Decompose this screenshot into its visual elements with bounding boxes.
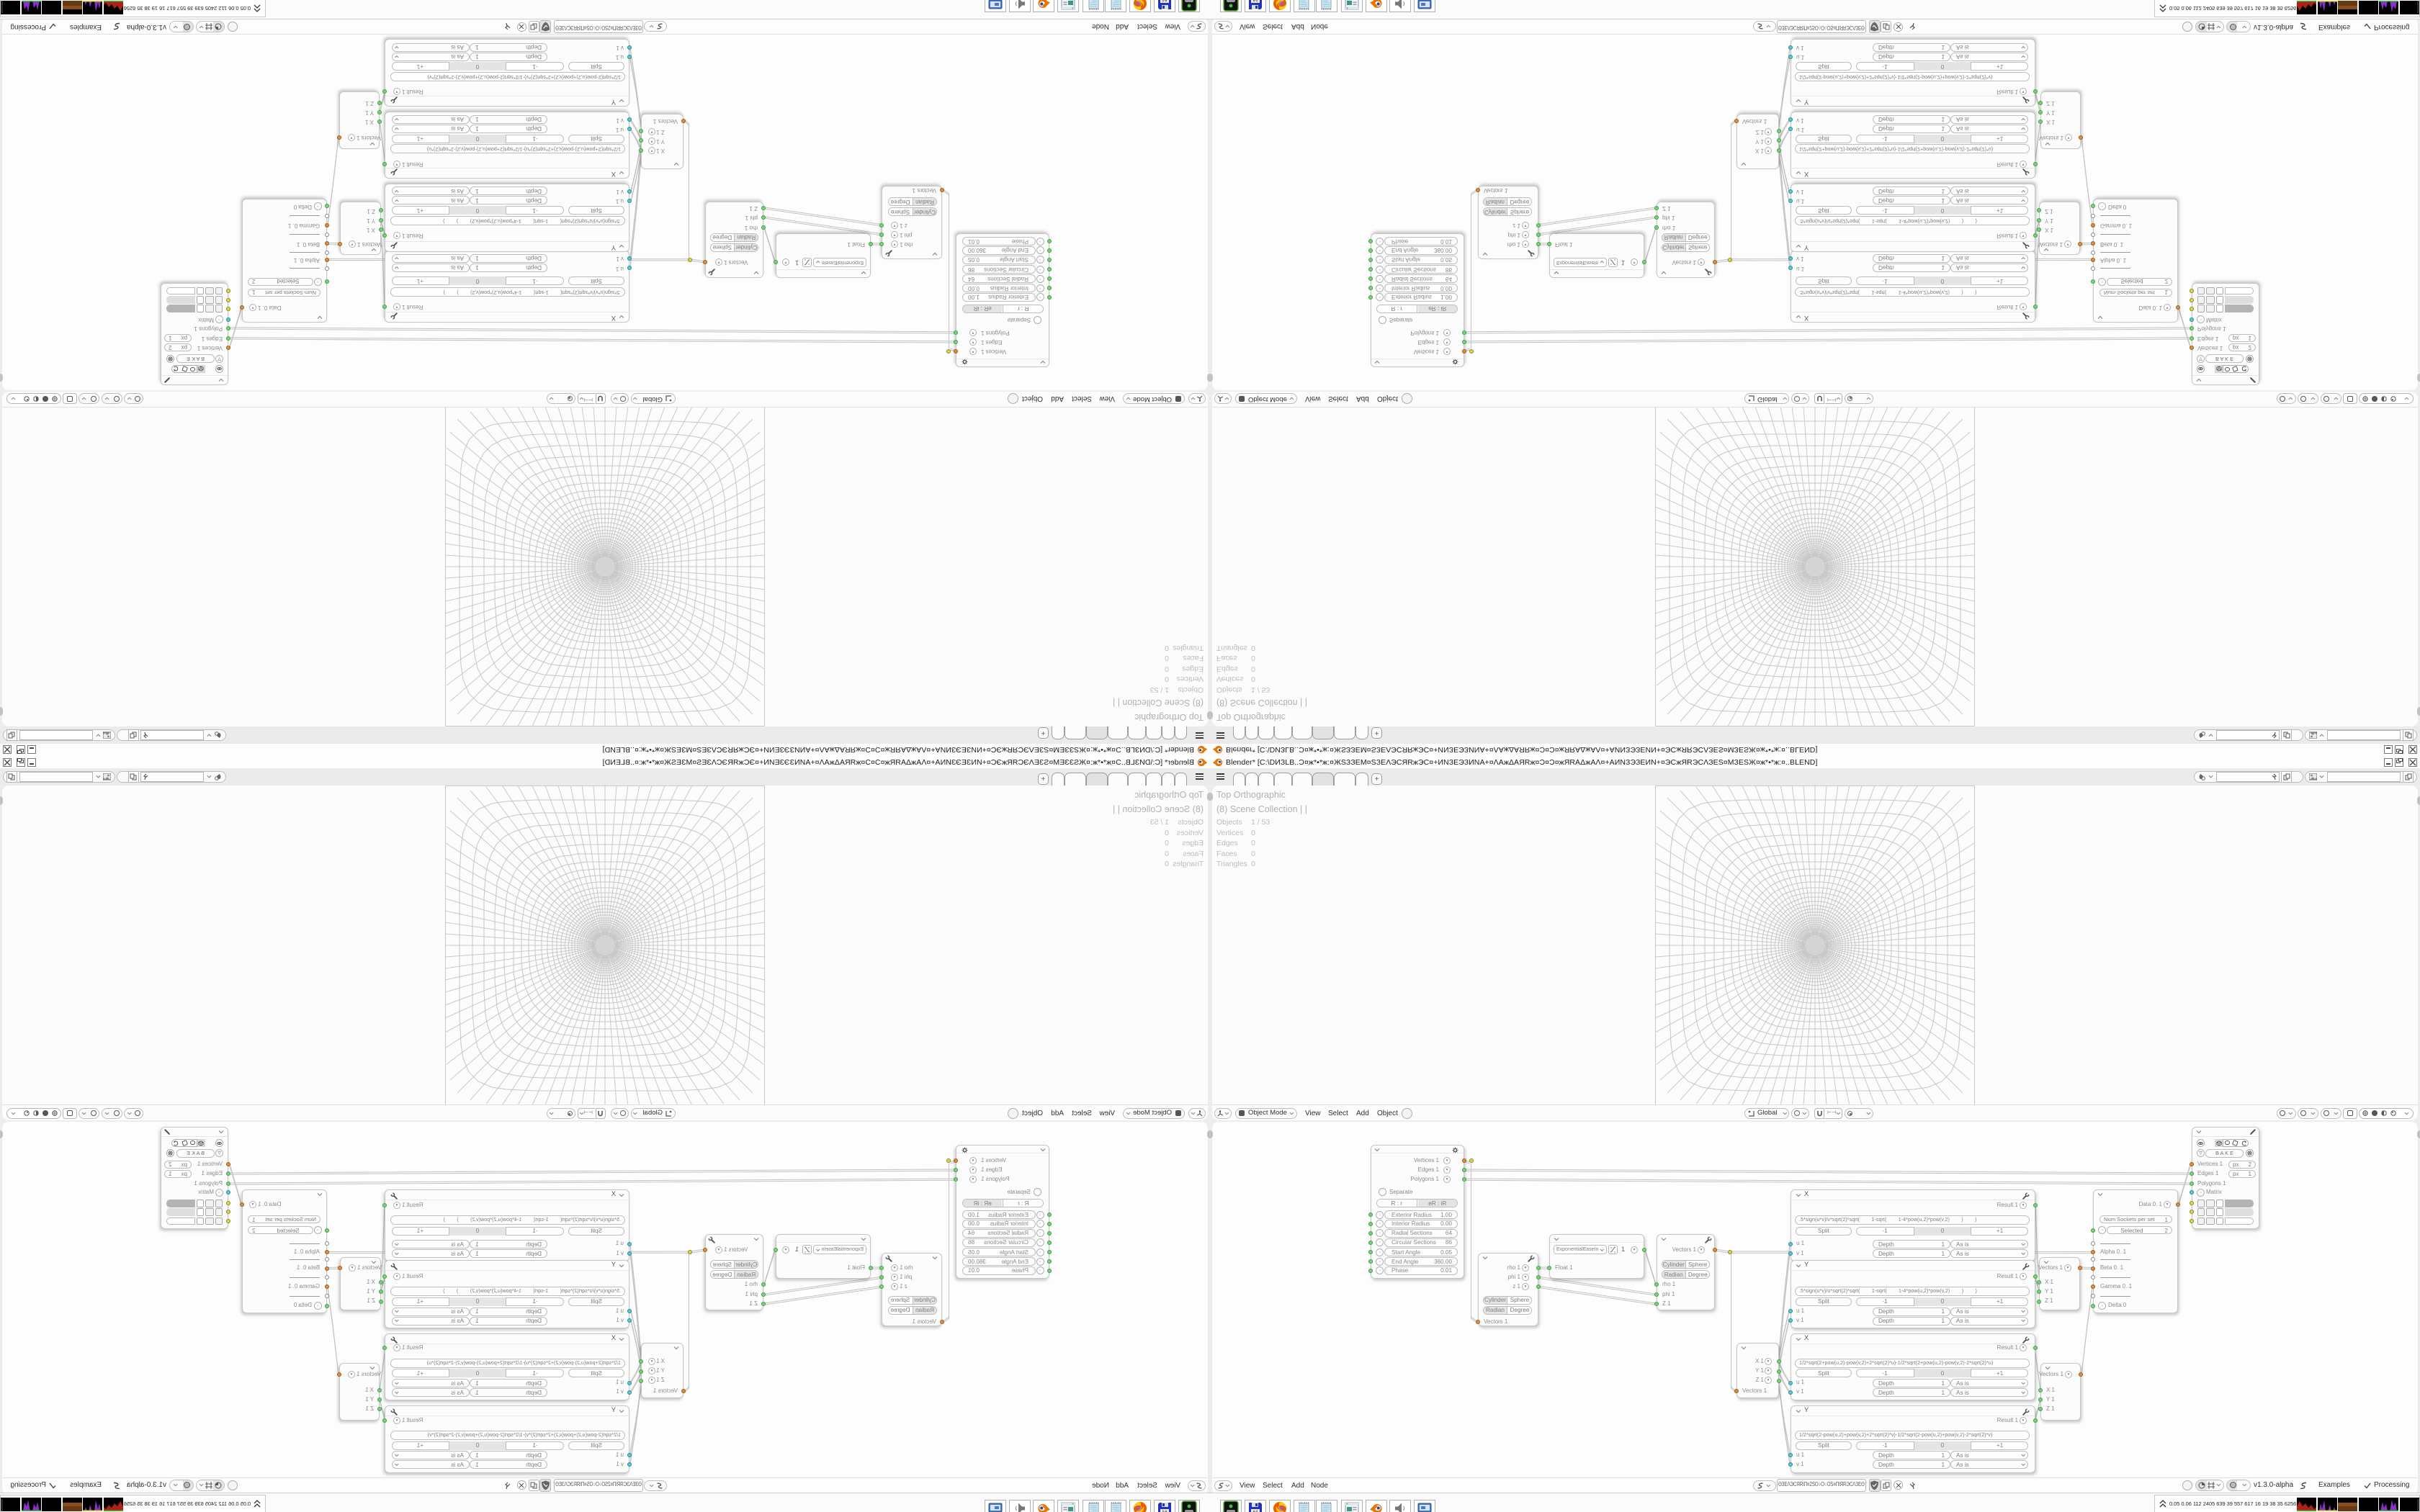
svg-text:64: 64 (1162, 0, 1167, 1)
svg-text:64: 64 (1252, 0, 1258, 1)
